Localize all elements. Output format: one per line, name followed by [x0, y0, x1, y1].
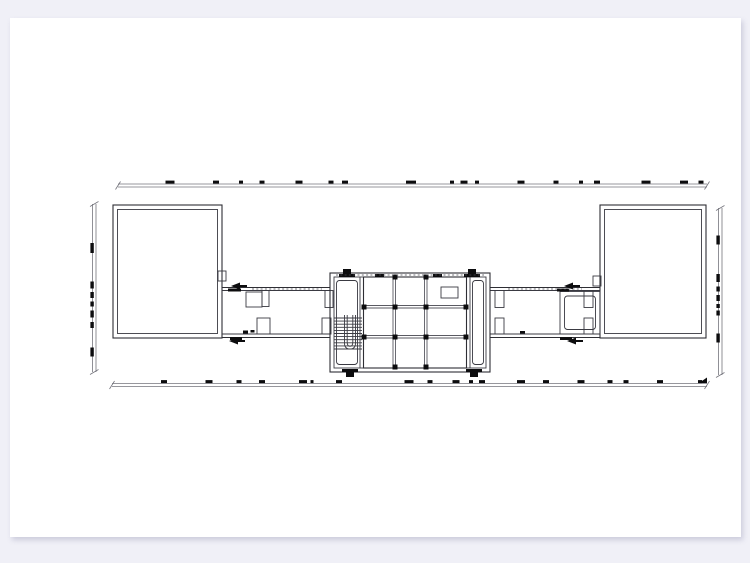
dim-text-mark [213, 181, 219, 184]
door-flag [466, 369, 482, 377]
dim-text-mark [342, 181, 348, 184]
stair-rail [345, 315, 356, 349]
dim-text-mark [657, 380, 663, 383]
door-arrow [564, 283, 580, 290]
dim-line-right [716, 206, 725, 378]
door-flag [342, 369, 358, 377]
column [424, 335, 429, 340]
dim-text-mark [90, 311, 93, 318]
annotation-mark [243, 331, 248, 334]
room-right [593, 205, 706, 338]
column [464, 335, 469, 340]
dim-text-mark [237, 380, 242, 383]
dim-text-mark [311, 380, 314, 383]
dim-text-mark [578, 380, 585, 383]
dim-text-mark [260, 181, 265, 184]
dim-text-mark [329, 181, 334, 184]
annotation-mark [375, 274, 384, 277]
column [393, 365, 398, 370]
dim-text-mark [543, 380, 549, 383]
dim-text-mark [428, 380, 433, 383]
annotation-mark [251, 330, 255, 333]
corridor-right [490, 288, 600, 338]
pilaster [257, 318, 270, 334]
dim-text-mark [716, 304, 719, 308]
annotation-mark [520, 331, 525, 334]
vestibule-room [560, 292, 600, 335]
dim-text-mark [206, 380, 213, 383]
dim-text-mark [716, 236, 719, 245]
dim-line-top [116, 181, 710, 190]
dim-text-mark [461, 181, 468, 184]
dim-text-mark [594, 181, 600, 184]
dim-text-mark [336, 380, 342, 383]
dimension-lines [90, 181, 725, 389]
dim-text-mark [699, 181, 704, 184]
dim-text-mark [680, 181, 688, 184]
room-left [113, 205, 226, 338]
column [393, 335, 398, 340]
annotation-mark [560, 337, 572, 340]
dim-line-left [90, 202, 99, 375]
dim-line-bottom [110, 378, 710, 390]
atrium-grid [364, 277, 467, 368]
pilaster [495, 318, 504, 334]
corridor-left [222, 288, 333, 338]
pilaster [584, 318, 593, 334]
dim-text-mark [716, 311, 719, 316]
dim-text-mark [406, 181, 416, 184]
dim-text-mark [475, 181, 479, 184]
dim-text-mark [299, 380, 307, 383]
dim-text-mark [716, 334, 719, 343]
column [362, 305, 367, 310]
dim-text-mark [716, 287, 719, 292]
pilaster [584, 291, 593, 308]
annotation-mark [228, 289, 241, 292]
dim-text-mark [405, 380, 414, 383]
column [424, 305, 429, 310]
dim-text-mark [166, 181, 175, 184]
dim-text-mark [259, 380, 265, 383]
dim-text-mark [517, 380, 525, 383]
pilaster [262, 291, 269, 307]
dim-text-mark [450, 181, 454, 184]
annotation-mark [557, 289, 569, 292]
door-flag-symbols [339, 269, 482, 377]
column [424, 365, 429, 370]
annotation-mark [230, 337, 242, 340]
dim-text-mark [90, 322, 93, 328]
dim-text-mark [608, 380, 613, 383]
pilaster [495, 291, 504, 308]
dim-text-mark [90, 348, 93, 357]
column [362, 335, 367, 340]
dim-text-mark [716, 295, 719, 301]
dim-text-mark [469, 380, 473, 383]
dim-text-mark [479, 380, 485, 383]
structural-columns [362, 275, 469, 370]
column [393, 305, 398, 310]
dim-text-mark [518, 181, 525, 184]
dim-text-mark [554, 181, 559, 184]
dim-text-mark [624, 380, 629, 383]
vestibule-room-inner [565, 296, 596, 330]
small-room [246, 292, 262, 307]
dim-text-mark [642, 181, 651, 184]
door-arrow [231, 283, 247, 290]
dim-text-mark [579, 181, 583, 184]
dim-text-mark [90, 282, 93, 289]
dim-text-mark [453, 380, 460, 383]
annotation-mark [433, 274, 442, 277]
annotation-marks [228, 274, 572, 340]
column [464, 305, 469, 310]
dim-text-mark [161, 380, 167, 383]
dim-text-mark [239, 181, 243, 184]
shaft-opening [441, 287, 458, 298]
right-vestibule-inner [473, 281, 484, 365]
dim-text-mark [90, 243, 93, 253]
floor-plan-drawing [0, 0, 750, 563]
pilaster [325, 291, 333, 308]
dim-text-mark [296, 181, 303, 184]
dim-text-mark [716, 274, 719, 282]
dim-text-mark [90, 292, 93, 298]
dim-text-mark [90, 302, 93, 307]
